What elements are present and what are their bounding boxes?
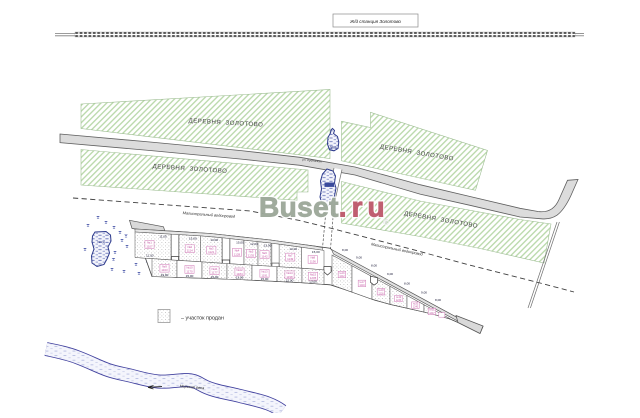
- svg-text:13,00: 13,00: [210, 238, 218, 242]
- svg-text:1149: 1149: [287, 257, 294, 261]
- svg-text:1219: 1219: [359, 284, 365, 287]
- svg-text:1247: 1247: [429, 312, 435, 315]
- svg-text:15,00: 15,00: [236, 241, 244, 245]
- svg-text:1128: 1128: [234, 252, 241, 256]
- svg-text:8,00: 8,00: [404, 281, 410, 285]
- svg-text:19,00: 19,00: [161, 273, 169, 277]
- svg-text:Ж/д станция Золотово: Ж/д станция Золотово: [349, 19, 401, 24]
- svg-text:15,00: 15,00: [261, 277, 269, 281]
- svg-text:8,00: 8,00: [342, 248, 348, 252]
- svg-text:– участок продан: – участок продан: [181, 316, 224, 322]
- svg-text:9,00: 9,00: [387, 272, 393, 276]
- svg-text:15,00: 15,00: [186, 274, 194, 278]
- svg-text:9,00: 9,00: [356, 255, 362, 259]
- svg-text:13,00: 13,00: [236, 276, 244, 280]
- svg-text:11,00: 11,00: [146, 254, 154, 258]
- svg-text:1121: 1121: [208, 250, 215, 254]
- svg-text:1163: 1163: [161, 268, 168, 272]
- svg-text:1212: 1212: [339, 275, 345, 278]
- svg-text:ПРУД: ПРУД: [330, 146, 337, 150]
- svg-text:13,00: 13,00: [309, 280, 317, 284]
- svg-text:8,00: 8,00: [371, 264, 377, 268]
- svg-text:1142: 1142: [261, 255, 268, 259]
- svg-text:1226: 1226: [378, 292, 384, 295]
- svg-text:®: ®: [383, 218, 389, 227]
- svg-text:8,00: 8,00: [435, 298, 441, 302]
- svg-text:15,00: 15,00: [211, 275, 219, 279]
- svg-text:13,00: 13,00: [264, 244, 272, 248]
- svg-text:9,00: 9,00: [421, 291, 427, 295]
- svg-text:Buset.ru: Buset.ru: [259, 192, 390, 223]
- svg-text:15,00: 15,00: [189, 237, 197, 241]
- svg-text:ПРУД: ПРУД: [97, 240, 104, 244]
- svg-text:1135: 1135: [248, 254, 255, 258]
- svg-text:11,00: 11,00: [159, 234, 167, 238]
- svg-text:1233: 1233: [396, 299, 402, 302]
- svg-text:15,00: 15,00: [312, 250, 320, 254]
- svg-text:1107: 1107: [146, 245, 153, 249]
- svg-text:1114: 1114: [187, 249, 193, 253]
- svg-text:1156: 1156: [310, 259, 317, 263]
- svg-text:13,00: 13,00: [289, 247, 297, 251]
- svg-text:1170: 1170: [186, 269, 193, 273]
- svg-text:1240: 1240: [413, 306, 419, 309]
- svg-text:12,00: 12,00: [286, 278, 294, 282]
- svg-text:12,00: 12,00: [250, 242, 258, 246]
